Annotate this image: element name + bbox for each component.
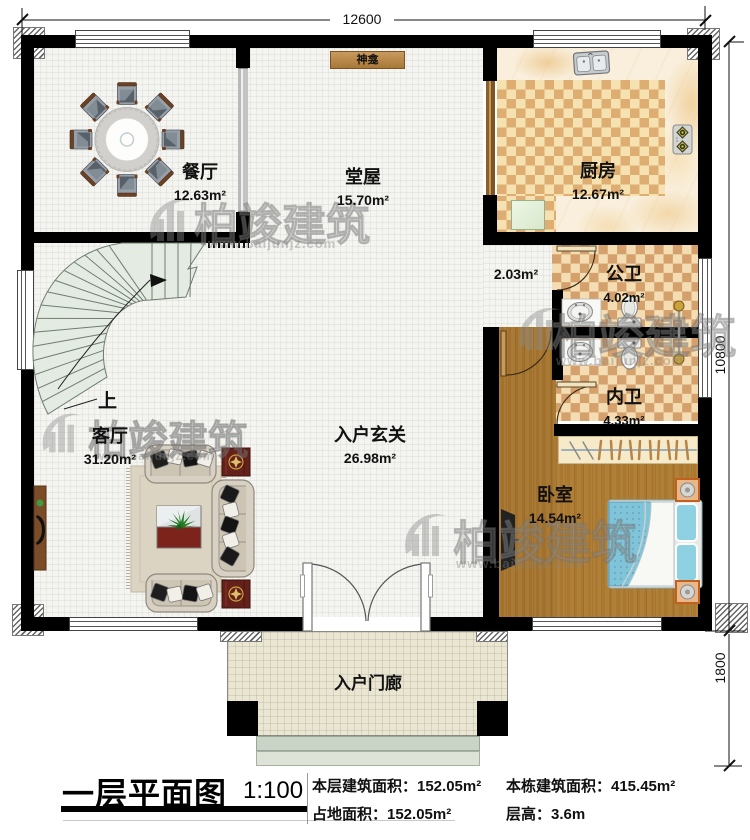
svg-text:1800: 1800 (712, 652, 728, 683)
svg-text:12600: 12600 (343, 11, 382, 27)
